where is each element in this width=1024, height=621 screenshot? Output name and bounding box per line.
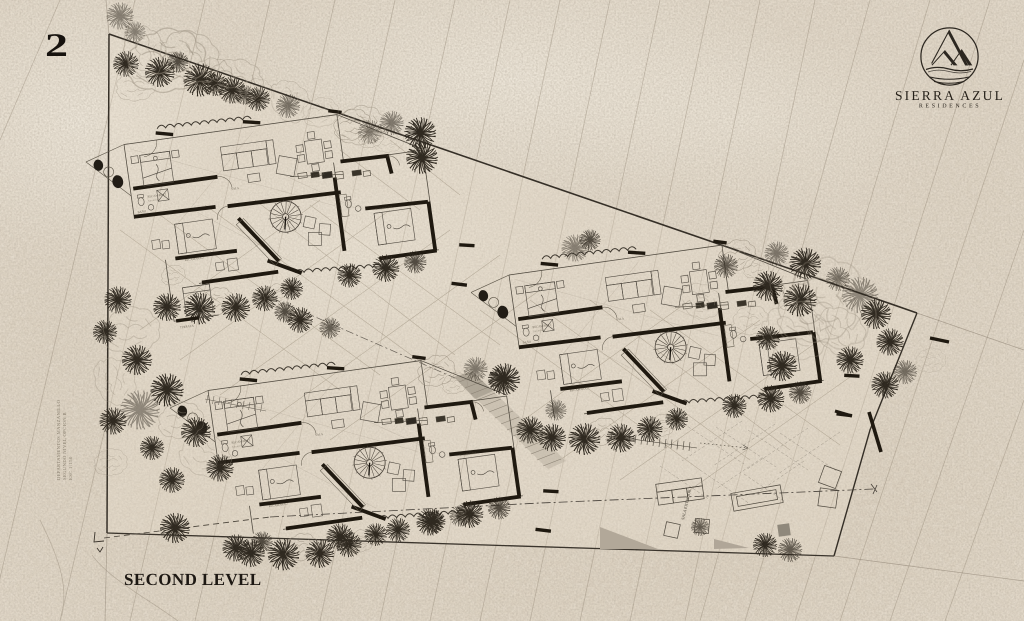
svg-text:ESC 1:150: ESC 1:150 xyxy=(68,456,73,480)
svg-text:SEGUNDO NIVEL OPCION B: SEGUNDO NIVEL OPCION B xyxy=(62,412,67,480)
svg-text:SECOND LEVEL: SECOND LEVEL xyxy=(124,570,262,589)
svg-text:RESIDENCES: RESIDENCES xyxy=(919,104,981,110)
svg-text:2: 2 xyxy=(45,28,68,64)
svg-text:DEPARTAMENTOS MANZANILLO: DEPARTAMENTOS MANZANILLO xyxy=(56,399,61,480)
svg-text:SIERRA AZUL: SIERRA AZUL xyxy=(895,88,1005,103)
